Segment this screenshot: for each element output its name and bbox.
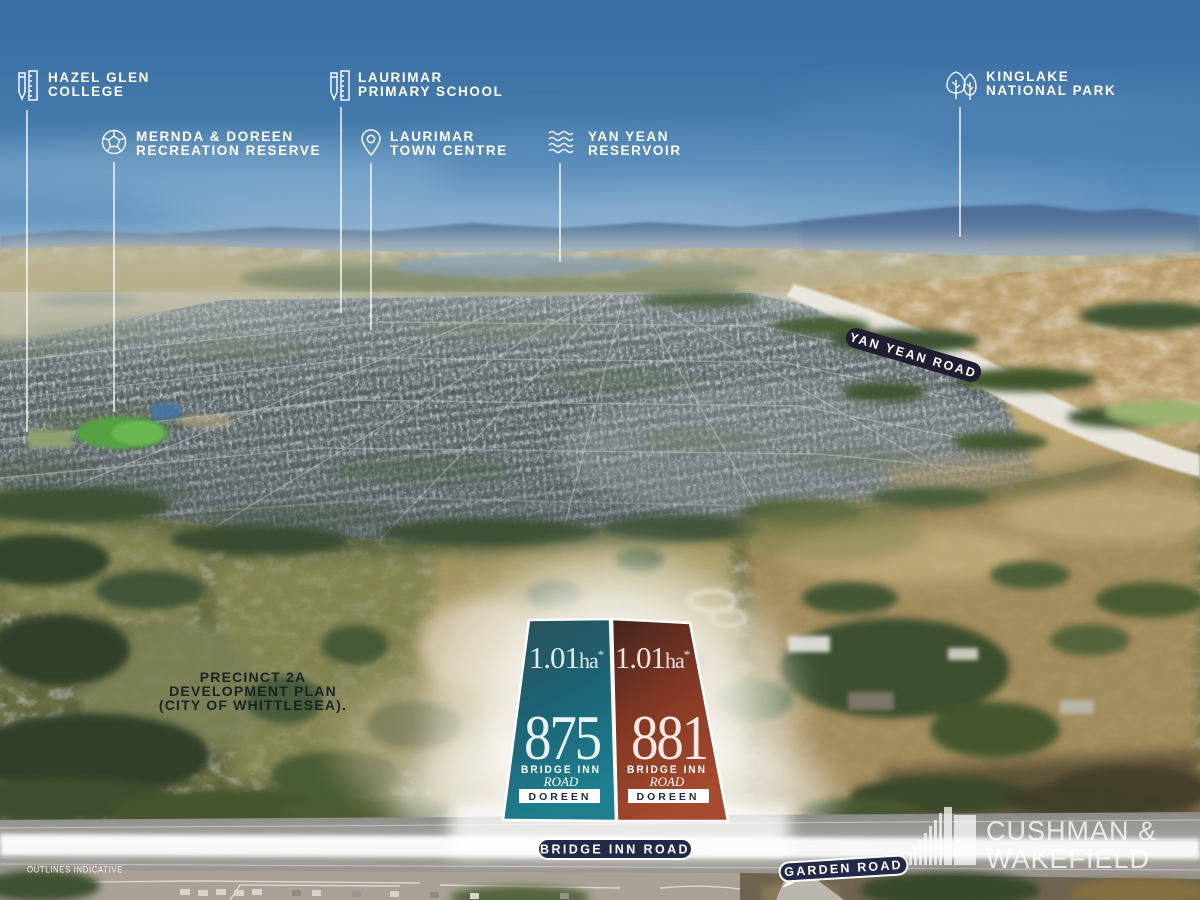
svg-text:COLLEGE: COLLEGE [48, 84, 124, 99]
svg-text:TOWN CENTRE: TOWN CENTRE [390, 143, 508, 158]
svg-text:(CITY OF WHITTLESEA).: (CITY OF WHITTLESEA). [159, 697, 347, 713]
svg-text:NATIONAL PARK: NATIONAL PARK [986, 83, 1116, 98]
svg-text:WAKEFIELD: WAKEFIELD [986, 844, 1150, 874]
svg-text:RESERVOIR: RESERVOIR [588, 143, 682, 158]
svg-text:ROAD: ROAD [649, 774, 685, 789]
svg-text:DOREEN: DOREEN [637, 791, 700, 803]
svg-text:875: 875 [524, 703, 601, 773]
svg-text:DOREEN: DOREEN [529, 791, 592, 803]
svg-text:HAZEL GLEN: HAZEL GLEN [48, 70, 150, 85]
svg-text:PRIMARY SCHOOL: PRIMARY SCHOOL [358, 84, 503, 99]
svg-text:CUSHMAN &: CUSHMAN & [986, 816, 1157, 846]
svg-text:ROAD: ROAD [543, 774, 579, 789]
svg-text:881: 881 [631, 703, 707, 773]
svg-text:YAN YEAN: YAN YEAN [588, 129, 669, 144]
svg-text:MERNDA & DOREEN: MERNDA & DOREEN [136, 129, 294, 144]
svg-text:KINGLAKE: KINGLAKE [986, 69, 1069, 84]
svg-text:LAURIMAR: LAURIMAR [358, 70, 443, 85]
svg-text:BRIDGE INN ROAD: BRIDGE INN ROAD [540, 843, 690, 857]
svg-text:OUTLINES INDICATIVE: OUTLINES INDICATIVE [27, 865, 123, 875]
svg-text:RECREATION RESERVE: RECREATION RESERVE [136, 143, 321, 158]
svg-text:LAURIMAR: LAURIMAR [390, 129, 475, 144]
